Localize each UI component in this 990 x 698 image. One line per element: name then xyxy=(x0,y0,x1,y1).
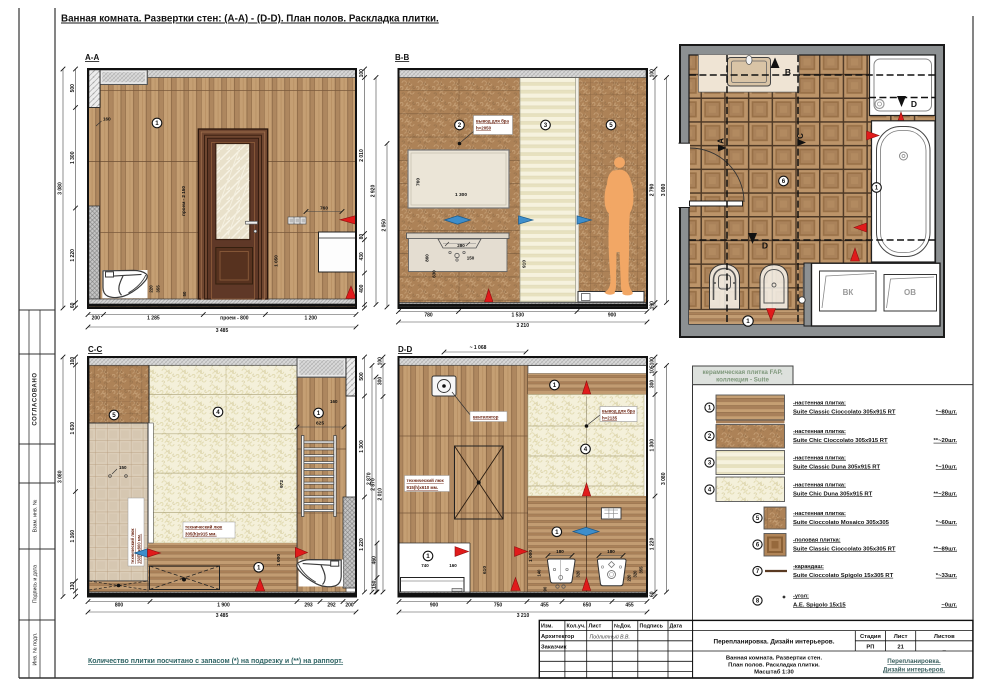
svg-text:3 485: 3 485 xyxy=(216,328,229,334)
svg-text:-настенная плитка:: -настенная плитка: xyxy=(793,400,846,406)
svg-text:740: 740 xyxy=(421,563,429,568)
svg-text:180: 180 xyxy=(556,549,564,554)
svg-text:915(h)x610 мм.: 915(h)x610 мм. xyxy=(407,485,439,490)
svg-text:630: 630 xyxy=(432,270,437,278)
svg-text:Подпись и дата: Подпись и дата xyxy=(33,565,39,603)
svg-text:Взам. инв. №: Взам. инв. № xyxy=(33,499,39,532)
svg-text:1 300: 1 300 xyxy=(70,151,76,164)
svg-text:Suite Cioccolato Mosaico 305x3: Suite Cioccolato Mosaico 305x305 xyxy=(793,520,890,526)
svg-text:**~28шт.: **~28шт. xyxy=(934,491,958,497)
svg-text:Ванная комната. Развертки стен: Ванная комната. Развертки стен. xyxy=(726,656,823,662)
svg-text:1 200: 1 200 xyxy=(304,316,317,322)
svg-text:Подпись: Подпись xyxy=(640,624,664,630)
svg-text:D: D xyxy=(762,241,768,251)
svg-text:1 000: 1 000 xyxy=(528,550,534,562)
svg-text:h=2135: h=2135 xyxy=(602,416,618,421)
svg-text:455: 455 xyxy=(540,603,549,609)
svg-text:1 050: 1 050 xyxy=(274,255,279,267)
svg-text:780: 780 xyxy=(424,313,433,319)
svg-text:проем - 2 150: проем - 2 150 xyxy=(181,186,186,216)
svg-text:1 530: 1 530 xyxy=(511,313,524,319)
svg-text:Suite Classic Duna 305x915 RT: Suite Classic Duna 305x915 RT xyxy=(793,464,880,470)
svg-text:D: D xyxy=(911,99,917,109)
svg-text:455: 455 xyxy=(625,603,634,609)
svg-text:100: 100 xyxy=(359,69,365,78)
svg-text:-угол:: -угол: xyxy=(793,593,809,599)
svg-text:100: 100 xyxy=(378,357,384,366)
svg-text:2 870: 2 870 xyxy=(367,472,373,485)
svg-text:2 010: 2 010 xyxy=(359,149,365,162)
svg-text:коллекция - Suite: коллекция - Suite xyxy=(716,377,769,384)
svg-text:5: 5 xyxy=(112,412,116,419)
svg-text:60: 60 xyxy=(650,591,656,597)
svg-text:1 900: 1 900 xyxy=(217,603,230,609)
svg-text:910: 910 xyxy=(522,260,528,268)
svg-text:140: 140 xyxy=(537,569,542,577)
svg-text:150: 150 xyxy=(372,580,378,589)
svg-text:150: 150 xyxy=(467,256,475,261)
svg-text:-настенная плитка:: -настенная плитка: xyxy=(793,482,846,488)
svg-text:220: 220 xyxy=(627,574,632,582)
svg-text:3 080: 3 080 xyxy=(661,184,667,197)
svg-text:В-В: В-В xyxy=(395,53,409,62)
svg-text:A.E. Spigolo 15x15: A.E. Spigolo 15x15 xyxy=(793,602,846,608)
svg-text:D-D: D-D xyxy=(398,345,412,354)
svg-text:105: 105 xyxy=(650,365,656,374)
svg-text:21: 21 xyxy=(897,645,904,651)
svg-text:4: 4 xyxy=(584,446,588,453)
svg-text:1 160: 1 160 xyxy=(70,530,76,543)
svg-text:1: 1 xyxy=(317,410,321,417)
svg-text:293: 293 xyxy=(304,603,313,609)
svg-text:180: 180 xyxy=(607,549,615,554)
svg-text:B: B xyxy=(785,67,791,77)
svg-text:2 010: 2 010 xyxy=(378,488,384,501)
svg-text:150(h)x800 мм.: 150(h)x800 мм. xyxy=(137,534,142,564)
svg-text:-карандаш:: -карандаш: xyxy=(793,564,824,570)
svg-text:Перепланировка. Дизайн интерье: Перепланировка. Дизайн интерьеров. xyxy=(714,638,835,646)
svg-text:**~89шт.: **~89шт. xyxy=(934,546,958,552)
svg-text:355: 355 xyxy=(156,285,161,293)
svg-text:2 920: 2 920 xyxy=(371,185,377,198)
svg-text:900: 900 xyxy=(430,603,439,609)
svg-text:**~20шт.: **~20шт. xyxy=(934,438,958,444)
svg-text:вывод для бра: вывод для бра xyxy=(476,119,509,124)
svg-text:625: 625 xyxy=(316,421,324,427)
svg-text:~ 1 068: ~ 1 068 xyxy=(470,345,487,351)
svg-text:760: 760 xyxy=(416,178,422,186)
svg-text:220: 220 xyxy=(149,285,154,293)
svg-text:460: 460 xyxy=(372,556,378,565)
svg-text:Подлитный В.В.: Подлитный В.В. xyxy=(590,634,630,641)
svg-text:Suite Classic Cioccolato 305x3: Suite Classic Cioccolato 305x305 RT xyxy=(793,546,896,552)
svg-text:100: 100 xyxy=(650,357,656,366)
svg-text:1 220: 1 220 xyxy=(70,249,76,262)
svg-text:Лист: Лист xyxy=(589,624,602,630)
svg-text:1: 1 xyxy=(426,553,430,560)
svg-text:80: 80 xyxy=(359,234,365,240)
svg-text:Инв. № подл.: Инв. № подл. xyxy=(33,633,39,666)
svg-text:Suite Classic Cioccolato 305x9: Suite Classic Cioccolato 305x915 RT xyxy=(793,409,896,415)
svg-text:*~33шт.: *~33шт. xyxy=(936,573,958,579)
svg-text:400: 400 xyxy=(359,284,365,293)
svg-text:-настенная плитка:: -настенная плитка: xyxy=(793,455,846,461)
svg-text:3 485: 3 485 xyxy=(216,613,229,619)
svg-text:С-С: С-С xyxy=(88,345,102,354)
svg-text:3 080: 3 080 xyxy=(661,472,667,485)
svg-text:6: 6 xyxy=(782,178,786,185)
svg-text:800: 800 xyxy=(115,603,124,609)
svg-text:А-А: А-А xyxy=(85,53,99,62)
svg-text:Листов: Листов xyxy=(934,634,955,640)
svg-text:5: 5 xyxy=(609,122,613,129)
svg-text:-настенная плитка:: -настенная плитка: xyxy=(793,429,846,435)
svg-text:2 790: 2 790 xyxy=(650,184,656,197)
svg-text:технический люк: технический люк xyxy=(185,525,223,530)
svg-text:1 300: 1 300 xyxy=(455,192,467,198)
svg-text:1 285: 1 285 xyxy=(147,316,160,322)
svg-text:150: 150 xyxy=(119,465,127,470)
svg-text:90: 90 xyxy=(543,586,548,591)
svg-text:2 050: 2 050 xyxy=(382,219,388,232)
svg-text:Кол.уч.: Кол.уч. xyxy=(567,624,586,630)
svg-text:100: 100 xyxy=(650,69,656,78)
svg-text:вентилятор: вентилятор xyxy=(473,415,499,420)
svg-text:№Док.: №Док. xyxy=(614,624,632,630)
svg-text:200: 200 xyxy=(345,603,354,609)
svg-text:-половая плитка:: -половая плитка: xyxy=(793,537,841,543)
svg-text:Изм.: Изм. xyxy=(541,624,553,630)
svg-text:технический люк: технический люк xyxy=(407,478,445,483)
svg-text:1 300: 1 300 xyxy=(359,440,365,453)
svg-text:План полов. Раскладка плитки.: План полов. Раскладка плитки. xyxy=(728,663,820,669)
svg-text:Suite Chic Duna 305x915 RT: Suite Chic Duna 305x915 RT xyxy=(793,491,873,497)
svg-text:Suite Chic Cioccolato 305x915: Suite Chic Cioccolato 305x915 RT xyxy=(793,438,888,444)
svg-text:технический люк: технический люк xyxy=(130,528,135,564)
svg-text:500: 500 xyxy=(70,84,76,93)
svg-text:1: 1 xyxy=(746,318,750,325)
svg-text:50: 50 xyxy=(182,291,187,296)
svg-text:972: 972 xyxy=(279,480,285,488)
svg-text:610: 610 xyxy=(482,566,488,574)
svg-text:1: 1 xyxy=(553,382,557,389)
svg-text:1 000: 1 000 xyxy=(276,554,282,566)
svg-text:3: 3 xyxy=(544,122,548,129)
svg-text:3 080: 3 080 xyxy=(58,470,64,483)
svg-text:160: 160 xyxy=(449,563,457,568)
svg-text:300: 300 xyxy=(650,380,656,389)
svg-text:Лист: Лист xyxy=(894,634,908,640)
svg-text:Масштаб 1:30: Масштаб 1:30 xyxy=(754,669,794,676)
svg-text:Перепланировка.: Перепланировка. xyxy=(887,658,941,665)
svg-text:4: 4 xyxy=(216,409,220,416)
svg-text:Дизайн интерьеров.: Дизайн интерьеров. xyxy=(883,667,945,674)
svg-text:320: 320 xyxy=(633,570,638,578)
svg-text:ВК: ВК xyxy=(843,288,854,297)
svg-text:305(h)x915 мм.: 305(h)x915 мм. xyxy=(185,532,217,537)
svg-text:Количество плитки посчитано с: Количество плитки посчитано с запасом (*… xyxy=(88,658,343,665)
svg-text:Стадия: Стадия xyxy=(860,634,881,640)
svg-text:355: 355 xyxy=(639,566,644,574)
svg-text:190: 190 xyxy=(650,301,656,310)
svg-text:керамическая плитка FAP,: керамическая плитка FAP, xyxy=(702,369,782,376)
svg-text:650: 650 xyxy=(583,603,592,609)
svg-text:1: 1 xyxy=(155,120,159,127)
svg-text:проем - 800: проем - 800 xyxy=(220,316,249,322)
svg-text:C: C xyxy=(796,133,805,139)
svg-text:100: 100 xyxy=(70,357,76,366)
svg-text:Ванная комната. Развертки стен: Ванная комната. Развертки стен: (А-А) - … xyxy=(61,14,439,25)
svg-text:3 210: 3 210 xyxy=(516,323,529,329)
svg-text:1 630: 1 630 xyxy=(70,422,76,435)
svg-text:300: 300 xyxy=(378,377,384,386)
svg-text:1 220: 1 220 xyxy=(359,538,365,551)
svg-text:h=2050: h=2050 xyxy=(476,126,492,131)
svg-text:860: 860 xyxy=(425,254,430,262)
svg-text:430: 430 xyxy=(359,252,365,261)
svg-text:Заказчик: Заказчик xyxy=(541,645,567,651)
svg-text:750: 750 xyxy=(494,603,503,609)
svg-text:760: 760 xyxy=(320,206,328,212)
svg-text:*~10шт.: *~10шт. xyxy=(936,464,958,470)
svg-text:СОГЛАСОВАНО: СОГЛАСОВАНО xyxy=(33,372,39,425)
svg-text:Дата: Дата xyxy=(670,624,683,630)
svg-text:500: 500 xyxy=(359,372,365,381)
svg-text:1: 1 xyxy=(257,565,261,572)
svg-text:2: 2 xyxy=(458,122,462,129)
svg-text:130: 130 xyxy=(70,582,76,591)
svg-text:-настенная плитка:: -настенная плитка: xyxy=(793,511,846,517)
svg-text:РП: РП xyxy=(866,645,874,651)
svg-text:160: 160 xyxy=(103,117,111,122)
svg-text:Suite Cioccolato Spigolo 15x30: Suite Cioccolato Spigolo 15x305 RT xyxy=(793,573,894,579)
svg-text:А: А xyxy=(717,138,726,144)
svg-text:1 300: 1 300 xyxy=(650,439,656,452)
svg-text:3 210: 3 210 xyxy=(517,613,530,619)
svg-text:Архитектор: Архитектор xyxy=(541,634,575,640)
svg-text:292: 292 xyxy=(327,603,336,609)
svg-text:3 080: 3 080 xyxy=(58,182,64,195)
svg-text:280: 280 xyxy=(457,243,465,248)
svg-text:900: 900 xyxy=(608,313,617,319)
svg-text:60: 60 xyxy=(70,302,76,308)
svg-text:320: 320 xyxy=(576,570,581,578)
svg-text:*~80шт.: *~80шт. xyxy=(936,409,958,415)
svg-text:1: 1 xyxy=(875,185,879,192)
svg-text:*~60шт.: *~60шт. xyxy=(936,520,958,526)
svg-text:ОВ: ОВ xyxy=(904,288,916,297)
svg-text:1: 1 xyxy=(555,529,559,536)
svg-text:вывод для бра: вывод для бра xyxy=(602,409,635,414)
svg-text:200: 200 xyxy=(92,316,101,322)
svg-text:1 220: 1 220 xyxy=(650,538,656,551)
svg-text:~0шт.: ~0шт. xyxy=(941,602,957,608)
svg-text:160: 160 xyxy=(330,399,338,404)
